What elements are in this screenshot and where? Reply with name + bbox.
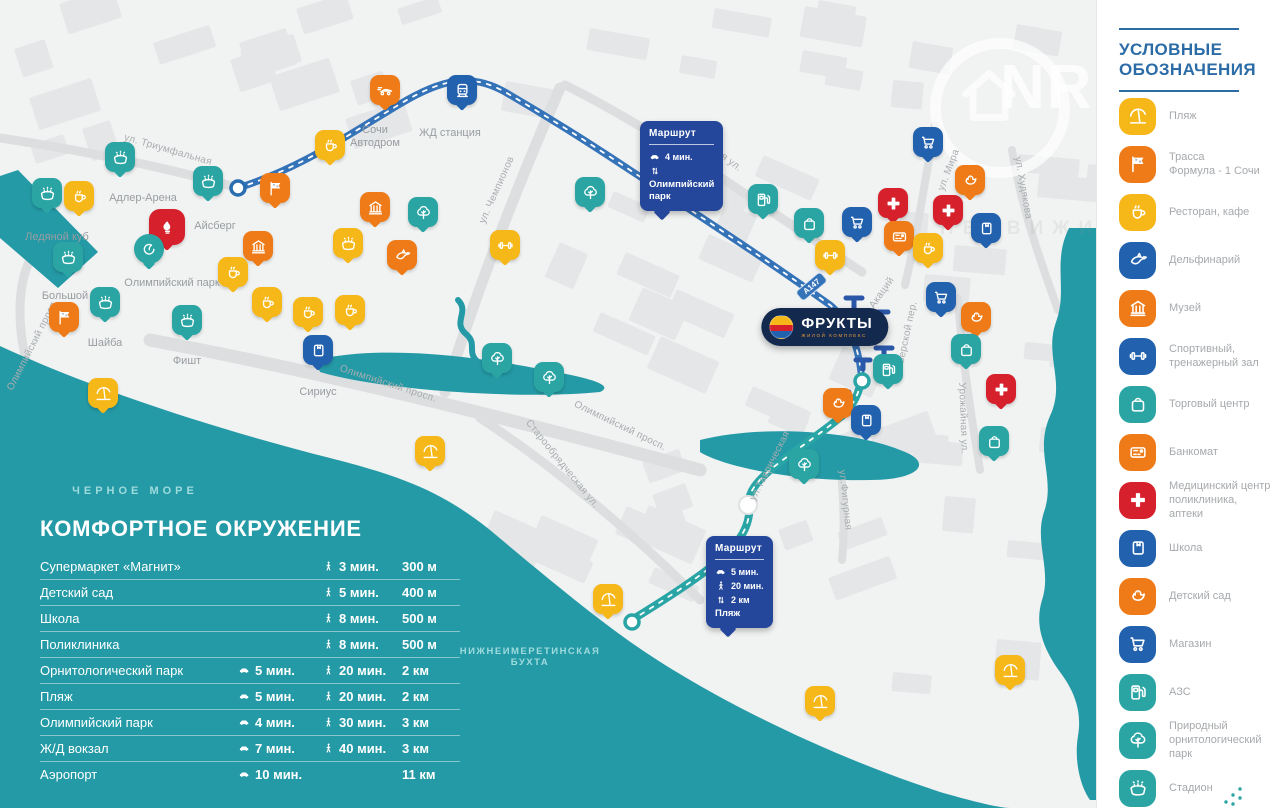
car-icon [238,690,251,703]
walk-icon [322,612,335,625]
walk-icon [322,638,335,651]
beach-icon [1127,105,1149,127]
legend-pin [1119,386,1156,423]
table-row: Пляж 5 мин. 20 мин. 2 км [40,684,460,710]
place-label: ЖД станция [419,127,481,140]
marker-shop [913,127,943,157]
walk-icon [322,690,335,703]
table-walk-time: 8 мин. [322,637,402,652]
marker-medical [878,188,908,218]
table-car-time: 4 мин. [238,715,322,730]
marker-school [851,405,881,435]
table-row: Школа 8 мин. 500 м [40,606,460,632]
marker-gas [748,184,778,214]
gym-icon [1127,345,1149,367]
table-walk-time: 3 мин. [322,559,402,574]
table-walk-time: 30 мин. [322,715,402,730]
legend-label: Трасса Формула - 1 Сочи [1169,150,1260,179]
marker-medical [986,374,1016,404]
marker-formula [49,302,79,332]
legend-pin [1119,290,1156,327]
table-walk-time: 8 мин. [322,611,402,626]
legend-label: Дельфинарий [1169,253,1240,267]
marker-kindergarten [823,388,853,418]
table-place-name: Детский сад [40,585,238,600]
route-info-row: 20 мин. [715,580,764,592]
school-icon [1127,537,1149,559]
street-label: Олимпийский просп. [338,363,437,405]
legend-pin [1119,530,1156,567]
table-walk-time: 5 мин. [322,585,402,600]
car-icon [649,151,661,163]
table-place-name: Школа [40,611,238,626]
tree-icon [581,183,600,202]
legend-item-atm: Банкомат [1119,428,1280,476]
shop-icon [848,213,867,232]
gym-icon [821,246,840,265]
marker-beach [88,378,118,408]
car-icon [238,716,251,729]
table-distance: 11 км [402,767,460,782]
legend-label: Пляж [1169,109,1197,123]
street-label: Старообрядческая ул. [523,418,601,510]
marker-atm [884,221,914,251]
legend-pin [1119,626,1156,663]
marker-gym [815,240,845,270]
table-place-name: Олимпийский парк [40,715,238,730]
museum-icon [1127,297,1149,319]
table-walk-time: 20 мин. [322,663,402,678]
street-label: ул.Таврическая [748,429,793,502]
marker-stadium [193,166,223,196]
mall-icon [985,432,1004,451]
marker-stadium [32,178,62,208]
legend-pin [1119,194,1156,231]
beach-icon [421,442,440,461]
cafe-icon [321,136,340,155]
table-place-name: Супермаркет «Магнит» [40,559,238,574]
street-label: Олимпийский просп. [572,399,668,453]
shop-icon [919,133,938,152]
surroundings-title: КОМФОРТНОЕ ОКРУЖЕНИЕ [40,516,460,542]
legend-label: АЗС [1169,685,1191,699]
place-label: Сириус [299,386,336,399]
complex-subtitle: ЖИЛОЙ КОМПЛЕКС [801,333,872,338]
place-label: Айсберг [194,220,235,233]
marker-stadium [90,287,120,317]
school-icon [977,219,996,238]
table-distance: 2 км [402,663,460,678]
legend-label: Банкомат [1169,445,1218,459]
table-place-name: Ж/Д вокзал [40,741,238,756]
marker-tree [789,449,819,479]
marker-gym [490,230,520,260]
marker-medical [933,195,963,225]
legend-rule-top [1119,28,1239,30]
stadium-icon [178,311,197,330]
place-label: Шайба [88,337,123,350]
table-place-name: Орнитологический парк [40,663,238,678]
place-label: Олимпийский парк [124,277,219,290]
walk-icon [322,664,335,677]
legend-item-dolphin: Дельфинарий [1119,236,1280,284]
legend-item-cafe: Ресторан, кафе [1119,188,1280,236]
marker-cafe [315,130,345,160]
racecar-icon [376,81,395,100]
legend-items: Пляж Трасса Формула - 1 Сочи Ресторан, к… [1119,92,1280,808]
tree-icon [1127,729,1149,751]
route-info-row: 2 км [715,594,764,606]
updown-icon [715,594,727,606]
walk-icon [322,742,335,755]
tree-icon [488,349,507,368]
marker-cafe [913,233,943,263]
dots-decoration [1222,786,1252,808]
table-distance: 3 км [402,715,460,730]
legend-item-beach: Пляж [1119,92,1280,140]
formula-icon [55,308,74,327]
formula-icon [266,179,285,198]
table-car-time: 10 мин. [238,767,322,782]
dolphin-icon [393,246,412,265]
cafe-icon [341,301,360,320]
legend-item-stadium: Стадион [1119,764,1280,808]
stadium-icon [1127,777,1149,799]
table-car-time: 5 мин. [238,689,322,704]
walk-icon [322,560,335,573]
marker-dolphin [387,240,417,270]
marker-stadium [333,228,363,258]
street-label: ул. Худякова [1012,156,1034,220]
legend-label: Стадион [1169,781,1213,795]
legend-item-shop: Магазин [1119,620,1280,668]
table-row: Ж/Д вокзал 7 мин. 40 мин. 3 км [40,736,460,762]
marker-olympic [134,234,164,264]
school-icon [309,341,328,360]
surroundings-table: КОМФОРТНОЕ ОКРУЖЕНИЕ Супермаркет «Магнит… [40,516,460,787]
museum-icon [249,237,268,256]
legend-pin [1119,434,1156,471]
promo-map-page: NR НЕДВИЖИМОСТЬ ул. ТриумфальнаяУрожайна… [0,0,1280,808]
route-info-row: 4 мин. [649,151,714,163]
legend-item-formula: Трасса Формула - 1 Сочи [1119,140,1280,188]
walk-icon [322,716,335,729]
route-info-row [649,165,714,177]
street-label: ул.Фигурная [836,469,853,530]
table-row: Поликлиника 8 мин. 500 м [40,632,460,658]
atm-icon [1127,441,1149,463]
legend-item-tree: Природный орнитологический парк [1119,716,1280,764]
legend-label: Спортивный, тренажерный зал [1169,342,1259,371]
route-destination: Пляж [715,608,764,620]
car-icon [715,566,727,578]
legend-item-school: Школа [1119,524,1280,572]
legend-item-kindergarten: Детский сад [1119,572,1280,620]
kindergarten-icon [829,394,848,413]
beach-icon [811,692,830,711]
marker-cafe [218,257,248,287]
marker-cafe [252,287,282,317]
mall-icon [1127,393,1149,415]
walk-icon [322,586,335,599]
route-badge: Маршрут 5 мин.20 мин.2 км Пляж [706,536,773,628]
marker-school [971,213,1001,243]
beach-icon [1001,661,1020,680]
kindergarten-icon [967,308,986,327]
stadium-icon [339,234,358,253]
stadium-icon [111,148,130,167]
table-row: Детский сад 5 мин. 400 м [40,580,460,606]
legend-pin [1119,98,1156,135]
stadium-icon [59,248,78,267]
olympic-icon [140,240,159,259]
beach-icon [94,384,113,403]
gas-icon [754,190,773,209]
route-destination: Олимпийский парк [649,179,714,203]
legend-item-mall: Торговый центр [1119,380,1280,428]
tree-icon [795,455,814,474]
train-icon [453,81,472,100]
legend-label: Школа [1169,541,1202,555]
car-icon [238,768,251,781]
medical-icon [1127,489,1149,511]
table-place-name: Аэропорт [40,767,238,782]
legend-label: Медицинский центр поликлиника, аптеки [1169,479,1270,522]
marker-beach [415,436,445,466]
marker-formula [260,173,290,203]
legend-label: Магазин [1169,637,1211,651]
gas-icon [1127,681,1149,703]
school-icon [857,411,876,430]
legend-pin [1119,578,1156,615]
medical-icon [884,194,903,213]
table-distance: 300 м [402,559,460,574]
legend-pin [1119,482,1156,519]
beach-icon [599,590,618,609]
legend-pin [1119,770,1156,807]
museum-icon [366,198,385,217]
legend-item-gas: АЗС [1119,668,1280,716]
cafe-icon [258,293,277,312]
cafe-icon [919,239,938,258]
table-walk-time: 40 мин. [322,741,402,756]
marker-stadium [172,305,202,335]
formula-icon [1127,153,1149,175]
marker-mall [951,334,981,364]
marker-shop [926,282,956,312]
legend-label: Ресторан, кафе [1169,205,1249,219]
legend-pin [1119,146,1156,183]
table-row: Аэропорт 10 мин. 11 км [40,762,460,787]
place-label: Ледяной куб [25,231,89,244]
table-place-name: Пляж [40,689,238,704]
marker-tree [534,362,564,392]
marker-tree [575,177,605,207]
marker-beach [995,655,1025,685]
legend-pin [1119,338,1156,375]
route-badge: Маршрут 4 мин. Олимпийский парк [640,121,723,211]
atm-icon [890,227,909,246]
complex-logo-badge: ФРУКТЫ ЖИЛОЙ КОМПЛЕКС [761,308,888,346]
gas-icon [879,360,898,379]
legend-item-gym: Спортивный, тренажерный зал [1119,332,1280,380]
sea-label: ЧЕРНОЕ МОРЕ [72,485,198,497]
legend-label: Природный орнитологический парк [1169,719,1262,762]
walk-icon [715,580,727,592]
table-car-time: 5 мин. [238,663,322,678]
marker-train [447,75,477,105]
table-walk-time: 20 мин. [322,689,402,704]
marker-mall [979,426,1009,456]
table-distance: 3 км [402,741,460,756]
marker-cafe [293,297,323,327]
cafe-icon [224,263,243,282]
marker-museum [243,231,273,261]
street-label: ул. Чемпионов [477,155,516,225]
medical-icon [992,380,1011,399]
complex-name: ФРУКТЫ [801,316,872,331]
marker-racecar [370,75,400,105]
table-row: Супермаркет «Магнит» 3 мин. 300 м [40,554,460,580]
car-icon [238,742,251,755]
marker-school [303,335,333,365]
stadium-icon [199,172,218,191]
table-distance: 400 м [402,585,460,600]
legend-label: Музей [1169,301,1201,315]
street-label: Урожайная ул. [956,382,969,454]
kindergarten-icon [1127,585,1149,607]
marker-cafe [64,181,94,211]
marker-beach [593,584,623,614]
shop-icon [932,288,951,307]
surroundings-rows: Супермаркет «Магнит» 3 мин. 300 м Детски… [40,554,460,787]
marker-stadium [53,242,83,272]
legend-title: УСЛОВНЫЕ ОБОЗНАЧЕНИЯ [1119,40,1280,80]
legend-panel: УСЛОВНЫЕ ОБОЗНАЧЕНИЯ Пляж Трасса Формула… [1096,0,1280,808]
mall-icon [800,214,819,233]
tree-icon [540,368,559,387]
place-label: Фишт [173,355,201,368]
marker-cafe [335,295,365,325]
legend-pin [1119,242,1156,279]
medical-icon [939,201,958,220]
marker-shop [842,207,872,237]
legend-label: Детский сад [1169,589,1231,603]
stadium-icon [38,184,57,203]
mall-icon [957,340,976,359]
marker-kindergarten [961,302,991,332]
table-distance: 500 м [402,637,460,652]
dolphin-icon [1127,249,1149,271]
torch-icon [158,218,177,237]
table-row: Орнитологический парк 5 мин. 20 мин. 2 к… [40,658,460,684]
route-badge-title: Маршрут [715,543,764,554]
marker-kindergarten [955,165,985,195]
marker-tree [482,343,512,373]
updown-icon [649,165,661,177]
street-label: ул. Триумфальная [123,132,213,168]
place-label: Адлер-Арена [109,192,177,205]
cafe-icon [299,303,318,322]
tree-icon [414,203,433,222]
stadium-icon [96,293,115,312]
legend-pin [1119,722,1156,759]
legend-item-medical: Медицинский центр поликлиника, аптеки [1119,476,1280,524]
marker-mall [794,208,824,238]
kindergarten-icon [961,171,980,190]
marker-museum [360,192,390,222]
marker-beach [805,686,835,716]
car-icon [238,664,251,677]
gym-icon [496,236,515,255]
table-distance: 500 м [402,611,460,626]
marker-tree [408,197,438,227]
legend-item-museum: Музей [1119,284,1280,332]
complex-logo-icon [769,315,793,339]
table-row: Олимпийский парк 4 мин. 30 мин. 3 км [40,710,460,736]
table-car-time: 7 мин. [238,741,322,756]
marker-gas [873,354,903,384]
place-label: Сочи Автодром [350,124,400,149]
legend-label: Торговый центр [1169,397,1249,411]
shop-icon [1127,633,1149,655]
table-distance: 2 км [402,689,460,704]
marker-stadium [105,142,135,172]
cafe-icon [70,187,89,206]
table-place-name: Поликлиника [40,637,238,652]
route-info-row: 5 мин. [715,566,764,578]
cafe-icon [1127,201,1149,223]
sea-label: НИЖНЕИМЕРЕТИНСКАЯ БУХТА [460,646,601,668]
route-badge-title: Маршрут [649,128,714,139]
place-label: Большой [42,290,88,303]
legend-pin [1119,674,1156,711]
map: NR НЕДВИЖИМОСТЬ ул. ТриумфальнаяУрожайна… [0,0,1096,808]
